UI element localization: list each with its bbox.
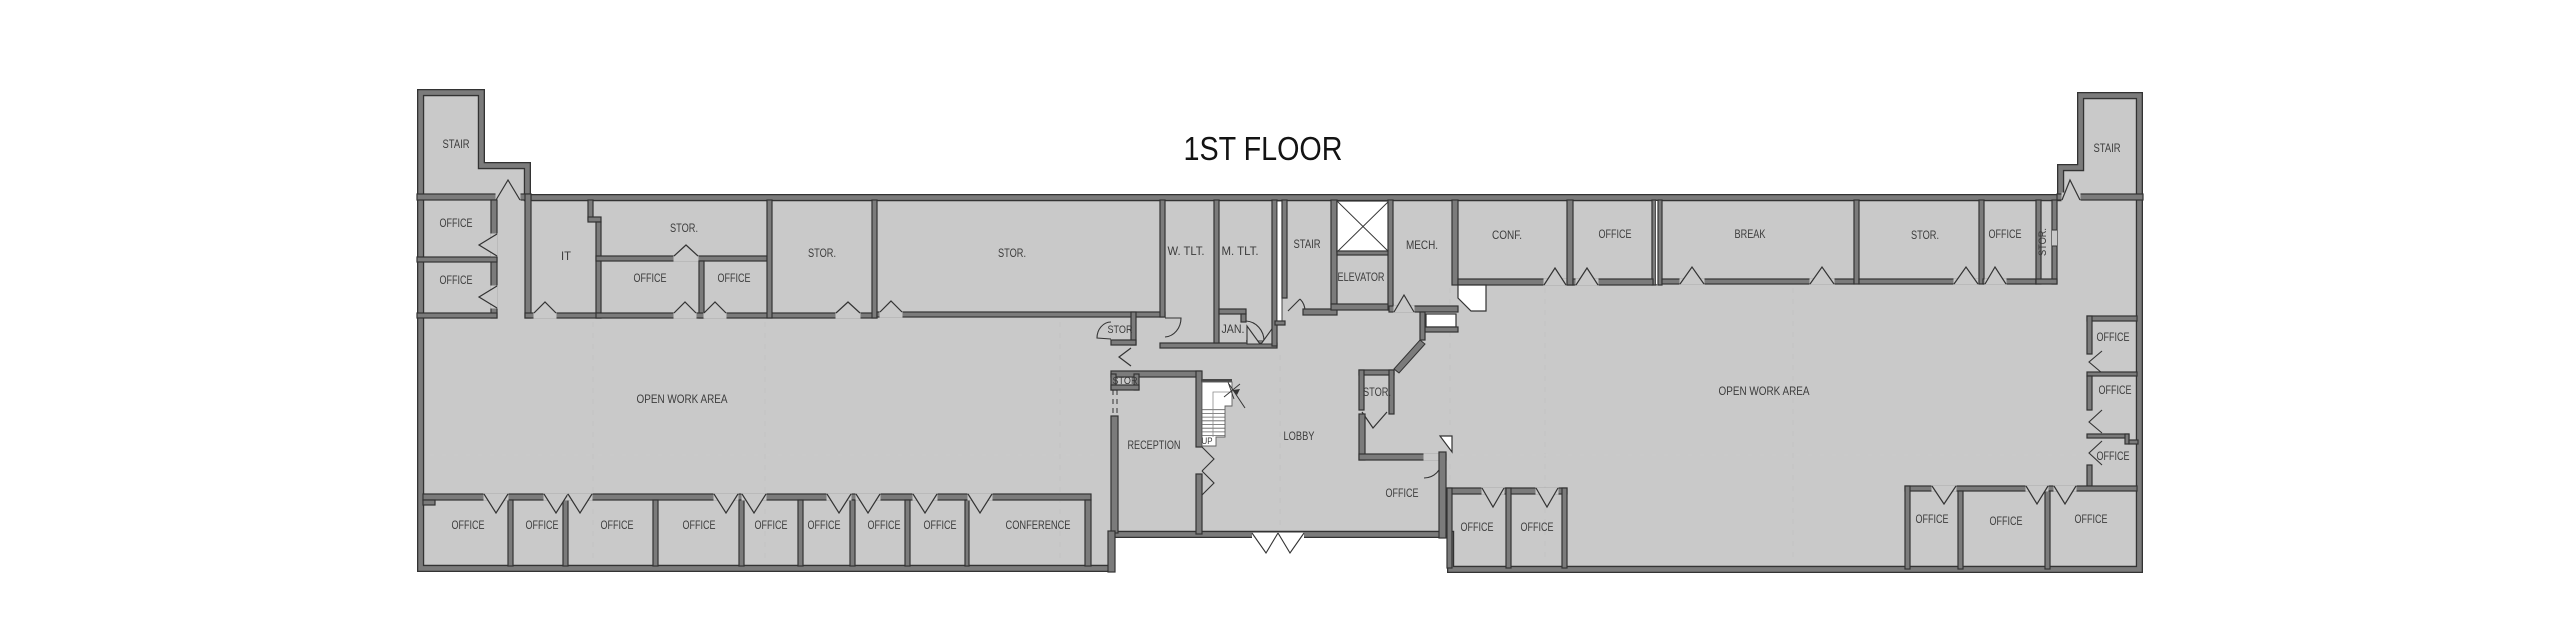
svg-text:STOR: STOR [1108, 324, 1133, 336]
svg-text:OFFICE: OFFICE [868, 518, 901, 532]
svg-text:OFFICE: OFFICE [1990, 514, 2023, 528]
svg-text:OFFICE: OFFICE [634, 271, 667, 285]
svg-text:OFFICE: OFFICE [440, 273, 473, 287]
svg-text:OPEN WORK AREA: OPEN WORK AREA [637, 392, 728, 406]
svg-text:STOR: STOR [1113, 376, 1138, 387]
svg-text:OFFICE: OFFICE [924, 518, 957, 532]
svg-text:OFFICE: OFFICE [1916, 512, 1949, 526]
svg-text:1ST FLOOR: 1ST FLOOR [1184, 130, 1343, 167]
svg-text:CONF.: CONF. [1492, 228, 1522, 242]
svg-text:OFFICE: OFFICE [2075, 512, 2108, 526]
svg-text:LOBBY: LOBBY [1284, 429, 1315, 443]
svg-text:IT: IT [561, 249, 572, 263]
svg-text:STOR.: STOR. [670, 221, 698, 235]
svg-text:STOR.: STOR. [1363, 385, 1391, 399]
svg-text:W. TLT.: W. TLT. [1168, 244, 1205, 258]
svg-text:OFFICE: OFFICE [440, 216, 473, 230]
svg-text:OFFICE: OFFICE [1989, 227, 2022, 241]
svg-text:OFFICE: OFFICE [1386, 486, 1419, 500]
svg-text:OFFICE: OFFICE [718, 271, 751, 285]
svg-text:OFFICE: OFFICE [452, 518, 485, 532]
svg-text:OPEN WORK AREA: OPEN WORK AREA [1719, 384, 1810, 398]
svg-text:OFFICE: OFFICE [526, 518, 559, 532]
svg-text:BREAK: BREAK [1735, 227, 1766, 241]
svg-text:OFFICE: OFFICE [2097, 330, 2130, 344]
svg-text:STOR.: STOR. [1911, 228, 1939, 242]
svg-text:RECEPTION: RECEPTION [1128, 438, 1181, 452]
svg-text:OFFICE: OFFICE [601, 518, 634, 532]
svg-text:OFFICE: OFFICE [1599, 227, 1632, 241]
svg-text:STOR.: STOR. [808, 246, 836, 260]
svg-text:STOR.: STOR. [2037, 228, 2049, 256]
svg-text:OFFICE: OFFICE [2097, 449, 2130, 463]
svg-text:STAIR: STAIR [443, 137, 470, 151]
svg-text:OFFICE: OFFICE [2099, 383, 2132, 397]
svg-text:OFFICE: OFFICE [808, 518, 841, 532]
svg-text:CONFERENCE: CONFERENCE [1006, 518, 1071, 532]
svg-text:OFFICE: OFFICE [1521, 520, 1554, 534]
svg-text:M. TLT.: M. TLT. [1222, 244, 1259, 258]
svg-text:MECH.: MECH. [1406, 238, 1438, 252]
svg-text:JAN.: JAN. [1222, 322, 1245, 336]
svg-text:STOR.: STOR. [998, 246, 1026, 260]
svg-text:OFFICE: OFFICE [1461, 520, 1494, 534]
svg-text:STAIR: STAIR [2094, 141, 2121, 155]
svg-text:STAIR: STAIR [1294, 237, 1321, 251]
svg-text:OFFICE: OFFICE [683, 518, 716, 532]
svg-text:OFFICE: OFFICE [755, 518, 788, 532]
svg-text:ELEVATOR: ELEVATOR [1338, 270, 1385, 284]
svg-text:UP: UP [1202, 436, 1213, 446]
